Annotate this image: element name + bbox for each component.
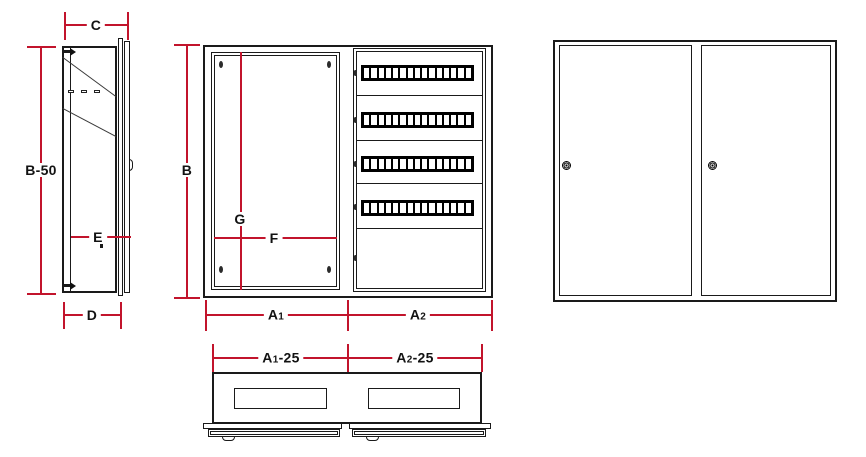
mounting-panel bbox=[214, 55, 337, 287]
dim-c-label: C bbox=[87, 18, 105, 32]
terminal-module bbox=[393, 203, 398, 213]
side-slot-mark-2 bbox=[81, 90, 87, 93]
bay-hinge-mark bbox=[354, 204, 357, 210]
dim-a-tick-right bbox=[491, 300, 493, 331]
terminal-module bbox=[364, 159, 369, 169]
terminal-strip bbox=[361, 65, 474, 81]
terminal-module bbox=[422, 203, 427, 213]
right-door-lock-icon bbox=[708, 161, 717, 170]
bay-hinge-mark bbox=[354, 255, 357, 261]
dim-b-tick-bottom bbox=[174, 297, 200, 299]
terminal-module bbox=[371, 115, 376, 125]
dim-a-tick-middle bbox=[347, 300, 349, 331]
terminal-module bbox=[466, 203, 471, 213]
top-door-tab-right bbox=[366, 436, 379, 441]
terminal-module bbox=[458, 203, 463, 213]
dim-g-line bbox=[240, 52, 242, 290]
terminal-module bbox=[415, 159, 420, 169]
panel-screw-bottom-right bbox=[327, 266, 331, 273]
terminal-module bbox=[379, 115, 384, 125]
side-slot-mark-1 bbox=[68, 90, 74, 93]
bay-divider-line bbox=[356, 183, 483, 184]
terminal-module bbox=[364, 68, 369, 78]
terminal-module bbox=[379, 68, 384, 78]
terminal-module bbox=[451, 203, 456, 213]
dim-a2-label: A2 bbox=[406, 308, 430, 323]
dim-g-label: G bbox=[230, 212, 249, 226]
dim-b-tick-top bbox=[174, 44, 200, 46]
terminal-module bbox=[393, 115, 398, 125]
side-fastener-arrow-top-icon bbox=[70, 48, 76, 56]
terminal-module bbox=[444, 115, 449, 125]
terminal-module bbox=[400, 159, 405, 169]
bay-divider-line bbox=[356, 95, 483, 96]
dim-f-label: F bbox=[266, 231, 283, 245]
top-door-tab-left bbox=[222, 436, 235, 441]
dim-d-tick-left bbox=[63, 302, 65, 329]
dim-e-label: E bbox=[89, 230, 107, 244]
bay-hinge-mark bbox=[354, 117, 357, 123]
terminal-module bbox=[386, 68, 391, 78]
terminal-module bbox=[371, 68, 376, 78]
terminal-module bbox=[408, 68, 413, 78]
dim-d-tick-right bbox=[120, 302, 122, 329]
terminal-module bbox=[422, 115, 427, 125]
terminal-module bbox=[386, 115, 391, 125]
bay-hinge-mark bbox=[354, 161, 357, 167]
terminal-module bbox=[437, 115, 442, 125]
terminal-module bbox=[437, 159, 442, 169]
dim-c-tick-right bbox=[127, 12, 129, 40]
terminal-module bbox=[429, 68, 434, 78]
terminal-module bbox=[458, 115, 463, 125]
terminal-module bbox=[393, 68, 398, 78]
terminal-strip bbox=[361, 200, 474, 216]
terminal-module bbox=[437, 68, 442, 78]
side-door-leaf bbox=[118, 38, 123, 296]
terminal-module bbox=[451, 115, 456, 125]
terminal-module bbox=[422, 159, 427, 169]
dim-c-tick-left bbox=[64, 12, 66, 40]
terminal-module bbox=[429, 159, 434, 169]
terminal-module bbox=[451, 159, 456, 169]
terminal-module bbox=[408, 159, 413, 169]
top-door-strip-left-inner bbox=[210, 431, 338, 435]
terminal-module bbox=[466, 115, 471, 125]
dim-b50-tick-top bbox=[27, 46, 56, 48]
terminal-module bbox=[429, 203, 434, 213]
terminal-module bbox=[371, 159, 376, 169]
dim-a-tick-left bbox=[205, 300, 207, 331]
dim-b-label: B bbox=[178, 163, 196, 177]
terminal-module bbox=[386, 159, 391, 169]
terminal-strip bbox=[361, 112, 474, 128]
terminal-module bbox=[408, 115, 413, 125]
terminal-module bbox=[371, 203, 376, 213]
terminal-module bbox=[437, 203, 442, 213]
side-slot-mark-3 bbox=[94, 90, 100, 93]
bay-divider-line bbox=[356, 140, 483, 141]
terminal-module bbox=[444, 159, 449, 169]
dim-b50-tick-bottom bbox=[27, 293, 56, 295]
dim-a1-25-label: A1-25 bbox=[258, 351, 303, 366]
panel-screw-top-left bbox=[219, 61, 223, 68]
right-door bbox=[701, 45, 831, 296]
terminal-module bbox=[415, 68, 420, 78]
terminal-module bbox=[364, 203, 369, 213]
bay-hinge-mark bbox=[354, 70, 357, 76]
dim-d-label: D bbox=[83, 308, 101, 322]
panel-screw-top-right bbox=[327, 61, 331, 68]
terminal-module bbox=[400, 203, 405, 213]
top-cutout-left bbox=[234, 388, 327, 409]
top-cutout-right bbox=[368, 388, 460, 409]
terminal-module bbox=[379, 159, 384, 169]
terminal-module bbox=[444, 68, 449, 78]
terminal-module bbox=[400, 68, 405, 78]
terminal-module bbox=[422, 68, 427, 78]
terminal-module bbox=[415, 115, 420, 125]
terminal-module bbox=[458, 159, 463, 169]
dim-a1-label: A1 bbox=[264, 308, 288, 323]
panel-screw-bottom-left bbox=[219, 266, 223, 273]
terminal-module bbox=[429, 115, 434, 125]
side-panel-line bbox=[70, 47, 71, 292]
top-door-strip-right-inner bbox=[354, 431, 484, 435]
terminal-module bbox=[466, 159, 471, 169]
terminal-module bbox=[444, 203, 449, 213]
left-door bbox=[559, 45, 692, 296]
terminal-module bbox=[400, 115, 405, 125]
terminal-strip bbox=[361, 156, 474, 172]
drawing-canvas: C B-50 E D bbox=[0, 0, 866, 457]
terminal-module bbox=[364, 115, 369, 125]
terminal-module bbox=[393, 159, 398, 169]
side-lock-bump bbox=[129, 159, 133, 171]
terminal-module bbox=[458, 68, 463, 78]
terminal-module bbox=[408, 203, 413, 213]
terminal-module bbox=[379, 203, 384, 213]
bay-divider-line bbox=[356, 228, 483, 229]
dim-a2-25-label: A2-25 bbox=[392, 351, 437, 366]
terminal-module bbox=[466, 68, 471, 78]
terminal-module bbox=[451, 68, 456, 78]
side-fastener-arrow-bottom-icon bbox=[70, 282, 76, 290]
terminal-module bbox=[386, 203, 391, 213]
left-door-lock-icon bbox=[562, 161, 571, 170]
terminal-module bbox=[415, 203, 420, 213]
dim-b50-label: B-50 bbox=[21, 163, 61, 177]
